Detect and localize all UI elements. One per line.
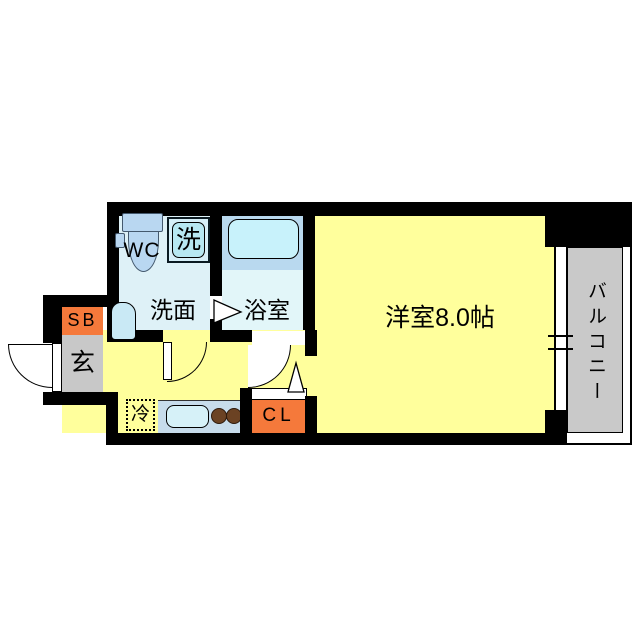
toilet-label: WC bbox=[113, 240, 171, 262]
refrigerator-label: 冷 bbox=[126, 403, 155, 427]
bathroom-label: 浴室 bbox=[228, 297, 306, 323]
washing-machine-label: 洗 bbox=[172, 222, 205, 258]
shoe-box-label: SB bbox=[62, 308, 103, 332]
main-room-label: 洋室8.0帖 bbox=[355, 304, 525, 332]
floor-plan: WC 洗 洗面 浴室 玄 SB CL 冷 洋室8.0帖 バルコニー bbox=[0, 0, 640, 640]
washroom-label: 洗面 bbox=[134, 297, 212, 323]
bathtub-icon bbox=[228, 219, 299, 259]
wall-top-right-block bbox=[545, 202, 632, 247]
closet-door bbox=[250, 388, 307, 400]
wall-closet-left bbox=[240, 388, 252, 433]
entrance-label: 玄 bbox=[62, 349, 103, 377]
balcony-label: バルコニー bbox=[584, 258, 606, 428]
balcony-window bbox=[554, 247, 568, 410]
stove-burner-icon bbox=[211, 408, 227, 424]
wall-closet-right bbox=[305, 396, 317, 445]
kitchen-sink-icon bbox=[166, 405, 209, 428]
closet-label: CL bbox=[252, 404, 305, 428]
wall-left-upper bbox=[43, 295, 62, 343]
washbasin-icon bbox=[111, 302, 136, 340]
entrance-door-leaf bbox=[52, 343, 62, 392]
wall-washroom-bathroom-upper bbox=[210, 202, 222, 296]
wall-bottom-right-corner bbox=[545, 410, 567, 445]
window-tick bbox=[548, 335, 573, 337]
room-door-opening bbox=[252, 331, 305, 345]
window-tick bbox=[548, 348, 573, 350]
wall-stub-door bbox=[305, 330, 317, 356]
entrance-door-swing-arc bbox=[8, 344, 52, 388]
toilet-tank-icon bbox=[122, 213, 163, 232]
wall-bottom bbox=[106, 433, 558, 445]
